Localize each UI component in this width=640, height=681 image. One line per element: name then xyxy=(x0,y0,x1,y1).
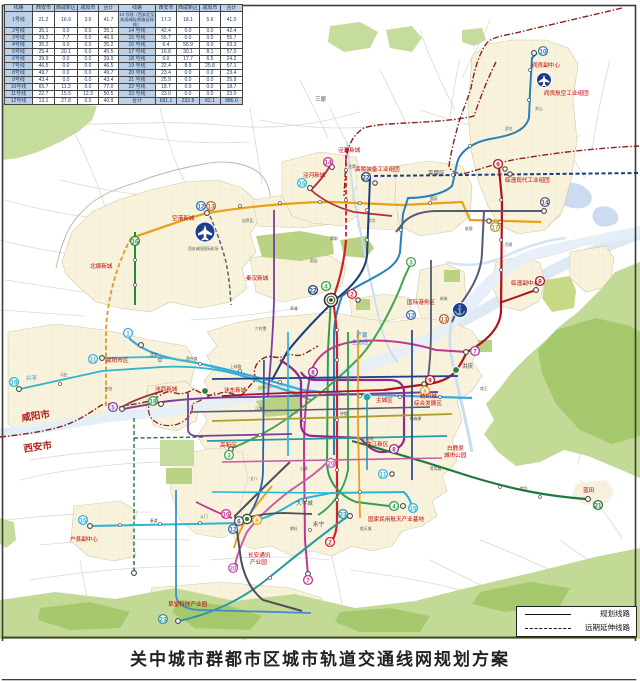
svg-text:国际港务区: 国际港务区 xyxy=(407,298,435,306)
svg-text:大雁塔: 大雁塔 xyxy=(362,436,374,441)
svg-text:沣西新城: 沣西新城 xyxy=(155,385,178,393)
svg-text:韩森寨: 韩森寨 xyxy=(410,416,422,421)
svg-text:曲江新区: 曲江新区 xyxy=(366,440,389,448)
svg-text:3: 3 xyxy=(409,259,413,266)
svg-text:13: 13 xyxy=(441,316,448,323)
svg-text:15: 15 xyxy=(410,505,417,512)
svg-text:生态区: 生态区 xyxy=(352,338,369,346)
svg-text:马庄: 马庄 xyxy=(60,372,68,377)
svg-text:22: 22 xyxy=(363,174,370,181)
svg-text:高陵区: 高陵区 xyxy=(428,169,445,177)
svg-text:新筑: 新筑 xyxy=(440,296,448,301)
svg-text:15: 15 xyxy=(80,517,87,524)
svg-text:两寺渡: 两寺渡 xyxy=(186,356,198,361)
svg-text:高陵装备工业组团: 高陵装备工业组团 xyxy=(355,165,400,173)
svg-text:浐灞: 浐灞 xyxy=(356,331,368,339)
svg-text:14: 14 xyxy=(542,199,549,206)
svg-text:小寨: 小寨 xyxy=(300,466,308,471)
svg-text:22: 22 xyxy=(310,287,317,294)
svg-text:12: 12 xyxy=(408,312,415,319)
svg-text:临潼现代工业组团: 临潼现代工业组团 xyxy=(505,176,550,184)
svg-text:泾渭: 泾渭 xyxy=(348,164,356,169)
svg-text:武屯: 武屯 xyxy=(505,126,513,131)
svg-text:临潼副中心: 临潼副中心 xyxy=(511,279,539,287)
svg-text:23: 23 xyxy=(340,511,347,518)
svg-text:航天城: 航天城 xyxy=(360,526,372,531)
svg-text:关山: 关山 xyxy=(535,106,543,111)
svg-text:钓台: 钓台 xyxy=(105,386,113,391)
svg-text:崇文: 崇文 xyxy=(368,218,376,223)
svg-text:综合发展区: 综合发展区 xyxy=(414,399,442,407)
svg-text:汉城: 汉城 xyxy=(255,406,263,411)
svg-text:⚓: ⚓ xyxy=(454,304,466,317)
svg-text:17: 17 xyxy=(492,224,499,231)
svg-text:泾河新城: 泾河新城 xyxy=(303,171,326,179)
svg-text:洪庆: 洪庆 xyxy=(462,362,474,370)
svg-text:11: 11 xyxy=(90,356,97,363)
svg-text:12: 12 xyxy=(198,203,205,210)
svg-text:咸阳市区: 咸阳市区 xyxy=(106,356,129,364)
svg-text:21: 21 xyxy=(595,502,602,509)
svg-text:8: 8 xyxy=(255,517,259,524)
svg-text:城市公园: 城市公园 xyxy=(444,451,467,459)
svg-text:主城区: 主城区 xyxy=(376,396,393,404)
svg-text:16: 16 xyxy=(132,238,139,245)
svg-text:9: 9 xyxy=(428,377,432,384)
svg-text:窑店: 窑店 xyxy=(310,258,318,263)
svg-text:7: 7 xyxy=(473,348,477,355)
svg-text:5: 5 xyxy=(111,404,115,411)
svg-text:16: 16 xyxy=(299,180,306,187)
svg-text:蓝田: 蓝田 xyxy=(583,486,595,494)
svg-text:焦岱: 焦岱 xyxy=(520,486,528,491)
svg-text:8: 8 xyxy=(311,369,315,376)
svg-text:19: 19 xyxy=(11,379,18,386)
svg-text:长安通讯: 长安通讯 xyxy=(248,551,271,559)
svg-text:北塬新城: 北塬新城 xyxy=(90,262,113,270)
svg-text:永宁: 永宁 xyxy=(313,520,325,528)
svg-text:草堂科技产业园: 草堂科技产业园 xyxy=(168,600,208,608)
svg-text:20: 20 xyxy=(230,565,237,572)
svg-text:6: 6 xyxy=(237,518,241,525)
svg-text:12: 12 xyxy=(230,526,237,533)
svg-text:郭杜: 郭杜 xyxy=(290,526,298,531)
svg-text:三原: 三原 xyxy=(315,96,327,103)
svg-text:高新区: 高新区 xyxy=(220,441,237,449)
svg-text:等驾坡: 等驾坡 xyxy=(430,466,442,471)
svg-text:丈八: 丈八 xyxy=(250,476,258,481)
svg-text:鹿苑: 鹿苑 xyxy=(430,196,438,201)
svg-text:4: 4 xyxy=(392,503,396,510)
svg-text:16: 16 xyxy=(223,511,230,518)
svg-text:9: 9 xyxy=(496,161,500,168)
svg-text:渭滨: 渭滨 xyxy=(150,352,158,357)
svg-text:白鹿原: 白鹿原 xyxy=(447,444,464,452)
svg-text:阎良副中心: 阎良副中心 xyxy=(532,61,560,69)
svg-text:渭柳: 渭柳 xyxy=(330,236,338,241)
svg-text:沣东新城: 沣东新城 xyxy=(224,386,247,394)
svg-text:14: 14 xyxy=(325,159,332,166)
svg-text:斗门: 斗门 xyxy=(200,514,208,519)
svg-text:泾渭新城: 泾渭新城 xyxy=(338,146,361,154)
svg-text:耿镇: 耿镇 xyxy=(465,226,473,231)
svg-text:席王: 席王 xyxy=(480,386,488,391)
svg-text:六村堡: 六村堡 xyxy=(255,326,267,331)
svg-text:兴平: 兴平 xyxy=(26,374,38,382)
svg-text:大学城: 大学城 xyxy=(296,499,313,507)
svg-text:户县副中心: 户县副中心 xyxy=(70,535,98,543)
svg-text:钟楼: 钟楼 xyxy=(340,411,348,416)
svg-text:西安咸阳国际机场: 西安咸阳国际机场 xyxy=(188,246,219,251)
svg-text:秦渡: 秦渡 xyxy=(150,518,158,523)
svg-text:自贸区: 自贸区 xyxy=(242,218,254,223)
svg-text:2: 2 xyxy=(328,539,332,546)
svg-text:空港新城: 空港新城 xyxy=(172,214,195,222)
svg-text:7: 7 xyxy=(306,577,310,584)
svg-text:4: 4 xyxy=(324,283,328,290)
svg-text:13: 13 xyxy=(208,203,215,210)
svg-text:23: 23 xyxy=(160,616,167,623)
svg-text:11: 11 xyxy=(380,471,387,478)
svg-text:纺织城: 纺织城 xyxy=(420,392,437,400)
svg-text:2: 2 xyxy=(350,291,354,298)
svg-text:3: 3 xyxy=(227,452,231,459)
svg-text:18: 18 xyxy=(150,398,157,405)
svg-text:8: 8 xyxy=(392,446,396,453)
svg-text:20: 20 xyxy=(328,460,335,467)
svg-text:10: 10 xyxy=(540,48,547,55)
svg-text:秦汉新城: 秦汉新城 xyxy=(246,274,269,282)
svg-text:草滩: 草滩 xyxy=(290,306,298,311)
svg-text:产业园: 产业园 xyxy=(250,558,267,566)
svg-text:国家民用航天产业基地: 国家民用航天产业基地 xyxy=(368,515,424,523)
svg-text:1: 1 xyxy=(126,330,130,337)
svg-text:上林路: 上林路 xyxy=(230,364,242,369)
svg-text:西泉: 西泉 xyxy=(505,242,513,247)
svg-text:阎良航空工业组团: 阎良航空工业组团 xyxy=(544,89,589,97)
